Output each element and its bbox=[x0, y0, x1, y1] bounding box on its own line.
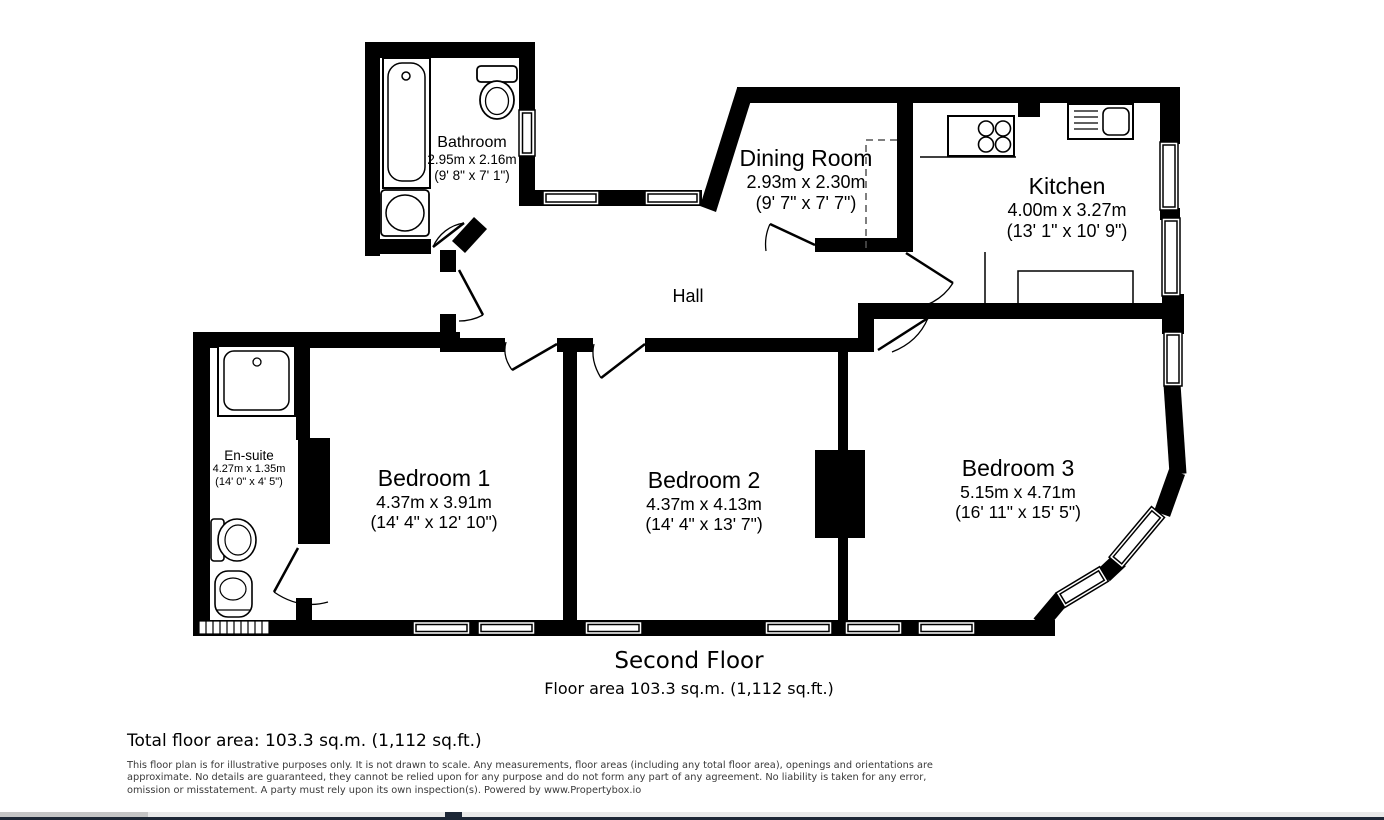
disclaimer-text: This floor plan is for illustrative purp… bbox=[127, 760, 969, 797]
shower-icon bbox=[218, 346, 295, 416]
room-label-bedroom1: Bedroom 1 4.37m x 3.91m (14' 4" x 12' 10… bbox=[370, 466, 497, 533]
room-name: En-suite bbox=[213, 448, 286, 463]
total-floor-area: Total floor area: 103.3 sq.m. (1,112 sq.… bbox=[127, 731, 482, 751]
window-icon bbox=[1160, 142, 1178, 210]
room-name: Bedroom 3 bbox=[955, 456, 1081, 482]
floor-title: Second Floor bbox=[614, 648, 763, 674]
room-name: Hall bbox=[672, 286, 703, 306]
window-icon bbox=[1164, 332, 1182, 386]
hob-icon bbox=[948, 116, 1014, 156]
door-icon bbox=[593, 344, 645, 378]
room-metric: 4.37m x 4.13m bbox=[645, 494, 762, 515]
room-imperial: (14' 4" x 12' 10") bbox=[370, 512, 497, 533]
basin-icon bbox=[381, 190, 429, 236]
floor-area-caption: Floor area 103.3 sq.m. (1,112 sq.ft.) bbox=[544, 679, 834, 698]
room-label-ensuite: En-suite 4.27m x 1.35m (14' 0" x 4' 5") bbox=[213, 448, 286, 489]
room-metric: 2.95m x 2.16m bbox=[427, 152, 516, 168]
door-icon bbox=[505, 342, 557, 370]
room-label-bedroom2: Bedroom 2 4.37m x 4.13m (14' 4" x 13' 7"… bbox=[645, 468, 762, 535]
room-metric: 5.15m x 4.71m bbox=[955, 482, 1081, 503]
room-imperial: (13' 1" x 10' 9") bbox=[1007, 221, 1128, 242]
window-icon bbox=[1162, 218, 1180, 296]
room-imperial: (9' 8" x 7' 1") bbox=[427, 168, 516, 184]
bathtub-icon bbox=[383, 58, 430, 188]
room-label-kitchen: Kitchen 4.00m x 3.27m (13' 1" x 10' 9") bbox=[1007, 174, 1128, 242]
door-icon bbox=[274, 548, 328, 604]
room-imperial: (16' 11" x 15' 5") bbox=[955, 502, 1081, 523]
room-label-dining: Dining Room 2.93m x 2.30m (9' 7" x 7' 7"… bbox=[740, 146, 873, 214]
walls bbox=[193, 42, 1184, 636]
floor-plan-drawing bbox=[0, 0, 1384, 715]
room-metric: 4.37m x 3.91m bbox=[370, 492, 497, 513]
door-icon bbox=[878, 318, 928, 352]
door-icon bbox=[459, 270, 483, 321]
toilet-icon bbox=[211, 519, 256, 561]
door-icon bbox=[766, 224, 815, 251]
window-icon bbox=[519, 110, 535, 156]
toilet-icon bbox=[215, 571, 252, 617]
floorplan-page: Bathroom 2.95m x 2.16m (9' 8" x 7' 1") D… bbox=[0, 0, 1384, 820]
room-name: Dining Room bbox=[740, 146, 873, 172]
room-metric: 2.93m x 2.30m bbox=[740, 172, 873, 193]
window-icon bbox=[478, 622, 535, 635]
window-icon bbox=[585, 622, 642, 635]
room-name: Bedroom 1 bbox=[370, 466, 497, 492]
door-icon bbox=[906, 253, 953, 309]
room-label-hall: Hall bbox=[672, 286, 703, 306]
room-metric: 4.00m x 3.27m bbox=[1007, 200, 1128, 221]
browser-bottom-bar bbox=[0, 812, 1384, 820]
window-icon bbox=[543, 191, 599, 205]
sink-icon bbox=[1068, 104, 1133, 139]
window-icon bbox=[765, 622, 832, 635]
room-metric: 4.27m x 1.35m bbox=[213, 463, 286, 476]
room-imperial: (9' 7" x 7' 7") bbox=[740, 193, 873, 214]
room-imperial: (14' 0" x 4' 5") bbox=[213, 476, 286, 489]
room-name: Kitchen bbox=[1007, 174, 1128, 200]
window-icon bbox=[1109, 507, 1164, 568]
room-name: Bedroom 2 bbox=[645, 468, 762, 494]
window-icon bbox=[1056, 567, 1108, 608]
room-label-bedroom3: Bedroom 3 5.15m x 4.71m (16' 11" x 15' 5… bbox=[955, 456, 1081, 523]
window-icon bbox=[845, 622, 902, 635]
room-label-bathroom: Bathroom 2.95m x 2.16m (9' 8" x 7' 1") bbox=[427, 134, 516, 184]
room-name: Bathroom bbox=[427, 134, 516, 152]
window-icon bbox=[918, 622, 975, 635]
window-icon bbox=[645, 191, 700, 205]
towel-rail-icon bbox=[199, 621, 269, 634]
window-icon bbox=[413, 622, 470, 635]
toilet-icon bbox=[477, 66, 517, 119]
doors bbox=[274, 223, 953, 604]
room-imperial: (14' 4" x 13' 7") bbox=[645, 514, 762, 535]
